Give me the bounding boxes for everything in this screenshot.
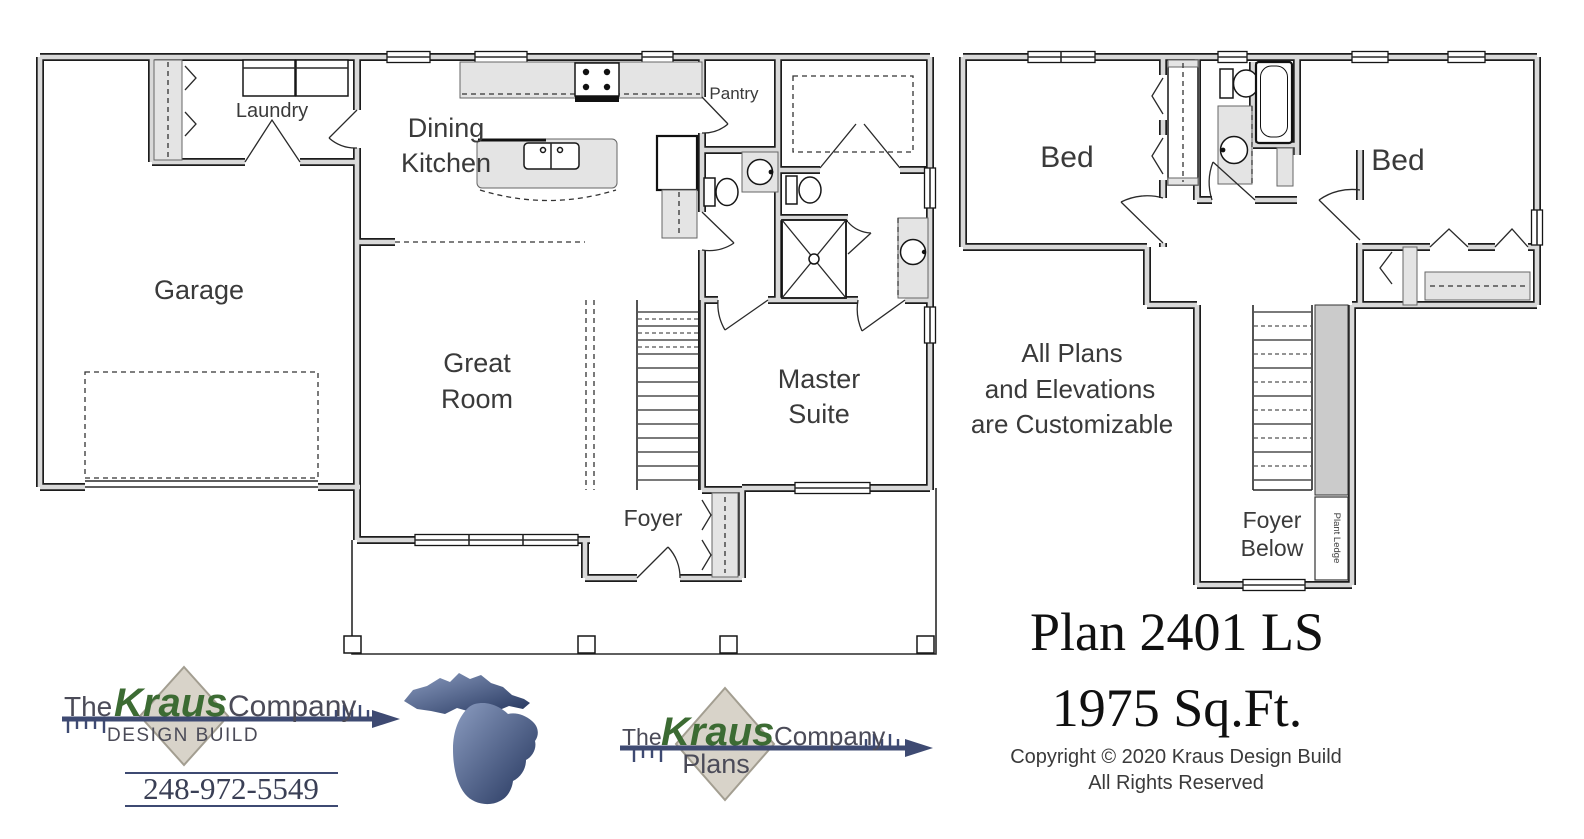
stairs-first-floor bbox=[637, 300, 700, 490]
bathtub-icon bbox=[1256, 62, 1292, 143]
second-floor-plan: Plant Ledge Bed Bed Foyer Below All Plan… bbox=[963, 52, 1543, 591]
toilet-icon bbox=[786, 176, 797, 204]
master-bath bbox=[782, 176, 928, 298]
room-label-bed-left: Bed bbox=[1040, 141, 1093, 174]
phone-number: 248-972-5549 bbox=[143, 771, 319, 806]
logo-tagline: DESIGN BUILD bbox=[107, 725, 259, 746]
arrow-icon bbox=[372, 710, 400, 728]
foyer-below-label-2: Below bbox=[1241, 535, 1304, 561]
toilet-icon bbox=[1220, 69, 1233, 98]
sink-icon bbox=[901, 240, 926, 265]
garage-door bbox=[85, 372, 318, 487]
room-label-master: Master bbox=[778, 364, 861, 394]
room-label-suite: Suite bbox=[788, 399, 850, 429]
room-label-garage: Garage bbox=[154, 275, 244, 305]
room-label-laundry: Laundry bbox=[236, 100, 308, 122]
plan-area: 1975 Sq.Ft. bbox=[1052, 678, 1303, 738]
master-closet bbox=[793, 76, 913, 168]
logo-suffix: Company bbox=[228, 690, 356, 723]
logo-suffix: Company bbox=[774, 721, 885, 751]
logo-name: Kraus bbox=[114, 681, 227, 725]
copyright-line-1: Copyright © 2020 Kraus Design Build bbox=[1010, 746, 1342, 768]
refrigerator-icon bbox=[657, 136, 697, 238]
logo-tagline: Plans bbox=[682, 749, 750, 779]
plan-sheet: { "ff": { "garage": "Garage", "laundry":… bbox=[0, 0, 1584, 839]
washer-dryer bbox=[243, 60, 348, 96]
room-label-foyer: Foyer bbox=[624, 505, 683, 531]
copyright-line-2: All Rights Reserved bbox=[1088, 772, 1264, 794]
plant-ledge: Plant Ledge bbox=[1315, 305, 1348, 580]
shower-icon bbox=[782, 220, 846, 298]
customizable-note-1: All Plans bbox=[1021, 338, 1122, 368]
laundry-closet bbox=[154, 60, 196, 160]
room-label-great: Great bbox=[443, 348, 511, 378]
plan-info: Plan 2401 LS 1975 Sq.Ft. Copyright © 202… bbox=[1010, 602, 1342, 794]
design-build-logo: The Kraus Company DESIGN BUILD 248-972-5… bbox=[62, 667, 400, 806]
plan-title: Plan 2401 LS bbox=[1030, 602, 1324, 662]
second-floor-bath bbox=[1218, 62, 1293, 186]
kitchen-counter bbox=[460, 62, 702, 102]
kitchen-island bbox=[477, 139, 617, 201]
plans-logo: The Kraus Company Plans bbox=[620, 688, 933, 800]
arrow-icon bbox=[905, 739, 933, 757]
michigan-icon bbox=[404, 673, 538, 804]
stairs-second-floor bbox=[1253, 305, 1312, 490]
half-bath bbox=[704, 152, 778, 206]
room-label-bed-right: Bed bbox=[1371, 144, 1424, 177]
customizable-note-2: and Elevations bbox=[985, 374, 1156, 404]
floor-plan-canvas: Garage Laundry Dining Kitchen Pantry Gre… bbox=[0, 0, 1584, 839]
room-label-dining: Dining bbox=[408, 113, 485, 143]
plant-ledge-label: Plant Ledge bbox=[1331, 513, 1342, 564]
customizable-note-3: are Customizable bbox=[971, 409, 1173, 439]
room-label-pantry: Pantry bbox=[709, 84, 759, 103]
foyer-closet bbox=[702, 493, 738, 577]
hall-closet bbox=[1152, 60, 1198, 185]
logo-name: Kraus bbox=[661, 710, 774, 754]
right-bed-closets bbox=[1380, 229, 1530, 305]
room-label-room: Room bbox=[441, 384, 513, 414]
foyer-below-label-1: Foyer bbox=[1243, 507, 1302, 533]
logo-prefix: The bbox=[64, 691, 112, 722]
logo-prefix: The bbox=[622, 724, 662, 750]
toilet-icon bbox=[704, 178, 715, 206]
room-label-kitchen: Kitchen bbox=[401, 148, 491, 178]
first-floor-plan: Garage Laundry Dining Kitchen Pantry Gre… bbox=[40, 52, 936, 655]
stove-icon bbox=[575, 63, 619, 96]
